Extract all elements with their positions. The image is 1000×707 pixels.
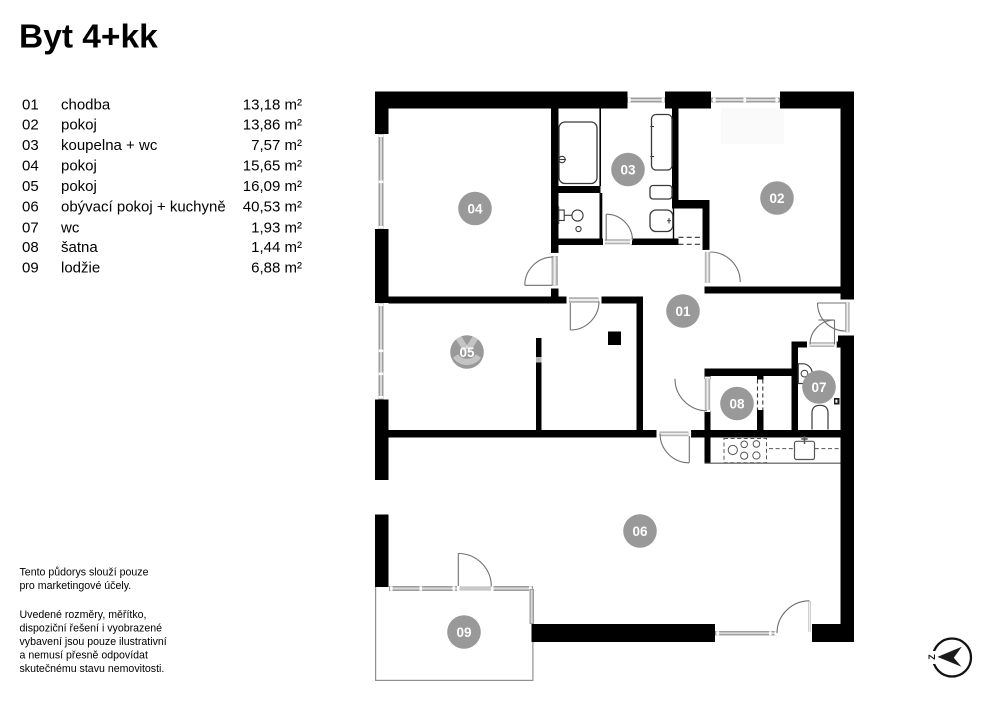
svg-text:02: 02 — [769, 191, 784, 206]
svg-text:1,44 m²: 1,44 m² — [251, 239, 302, 256]
svg-text:koupelna + wc: koupelna + wc — [61, 137, 158, 154]
svg-text:16,09 m²: 16,09 m² — [243, 178, 302, 195]
svg-text:06: 06 — [632, 524, 648, 539]
svg-text:Tento půdorys slouží pouze: Tento půdorys slouží pouze — [20, 567, 149, 579]
svg-text:09: 09 — [22, 260, 39, 277]
svg-text:03: 03 — [620, 162, 636, 177]
svg-text:04: 04 — [467, 201, 483, 216]
svg-text:vybavení jsou pouze ilustrativ: vybavení jsou pouze ilustrativní — [20, 636, 167, 648]
svg-text:08: 08 — [729, 396, 745, 411]
svg-text:06: 06 — [22, 198, 39, 215]
svg-text:02: 02 — [22, 117, 39, 134]
svg-text:01: 01 — [675, 304, 691, 319]
svg-text:05: 05 — [22, 178, 39, 195]
svg-text:7,57 m²: 7,57 m² — [251, 137, 302, 154]
svg-text:09: 09 — [456, 625, 471, 640]
svg-text:40,53 m²: 40,53 m² — [243, 198, 302, 215]
svg-text:13,18 m²: 13,18 m² — [243, 96, 302, 113]
svg-text:03: 03 — [22, 137, 39, 154]
svg-text:wc: wc — [60, 220, 80, 237]
svg-text:1,93 m²: 1,93 m² — [251, 220, 302, 237]
svg-text:13,86 m²: 13,86 m² — [243, 117, 302, 134]
svg-text:dispoziční řešení i vyobrazené: dispoziční řešení i vyobrazené — [20, 623, 163, 635]
svg-text:pro marketingové účely.: pro marketingové účely. — [20, 580, 132, 592]
svg-text:01: 01 — [22, 96, 39, 113]
svg-text:obývací pokoj + kuchyně: obývací pokoj + kuchyně — [61, 198, 226, 215]
svg-text:pokoj: pokoj — [61, 178, 97, 195]
svg-text:lodžie: lodžie — [61, 260, 100, 277]
svg-text:pokoj: pokoj — [61, 117, 97, 134]
svg-text:skutečnému stavu nemovitosti.: skutečnému stavu nemovitosti. — [20, 663, 165, 675]
svg-text:a nemusí přesně odpovídat: a nemusí přesně odpovídat — [20, 650, 148, 662]
svg-text:Z: Z — [927, 654, 937, 660]
svg-text:6,88 m²: 6,88 m² — [251, 260, 302, 277]
svg-text:07: 07 — [811, 380, 826, 395]
svg-text:Uvedené rozměry, měřítko,: Uvedené rozměry, měřítko, — [20, 609, 147, 621]
svg-text:pokoj: pokoj — [61, 158, 97, 175]
svg-text:07: 07 — [22, 220, 39, 237]
svg-text:chodba: chodba — [61, 96, 111, 113]
svg-text:08: 08 — [22, 239, 39, 256]
svg-text:04: 04 — [22, 158, 39, 175]
svg-text:15,65 m²: 15,65 m² — [243, 158, 302, 175]
svg-text:šatna: šatna — [61, 239, 98, 256]
svg-text:05: 05 — [459, 345, 475, 360]
svg-text:Byt 4+kk: Byt 4+kk — [19, 19, 158, 56]
